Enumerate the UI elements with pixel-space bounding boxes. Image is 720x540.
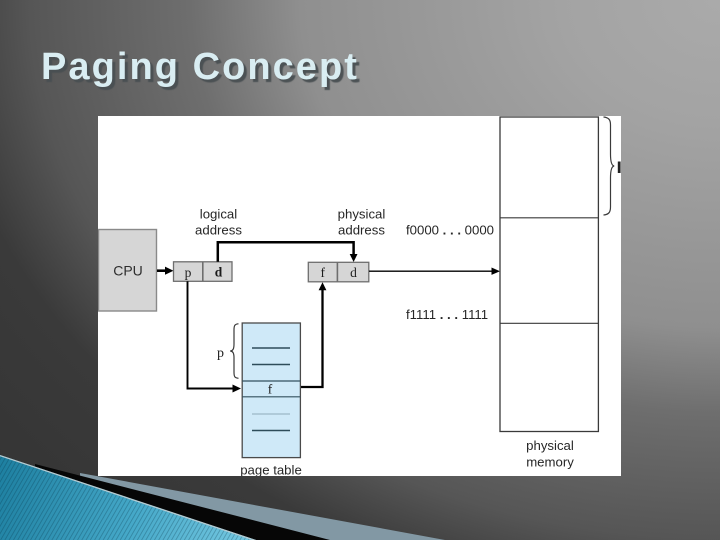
svg-text:p: p — [185, 265, 192, 280]
svg-text:address: address — [195, 223, 242, 238]
svg-text:f1111 . . . 1111: f1111 . . . 1111 — [406, 307, 488, 322]
svg-text:p: p — [217, 346, 224, 361]
svg-text:d: d — [215, 265, 223, 280]
svg-text:logical: logical — [200, 207, 237, 222]
svg-text:CPU: CPU — [113, 263, 143, 279]
svg-text:page table: page table — [240, 463, 302, 477]
svg-text:d: d — [350, 265, 357, 280]
svg-text:f: f — [268, 382, 273, 397]
svg-text:memory: memory — [526, 455, 574, 470]
svg-text:f: f — [320, 265, 325, 280]
svg-text:f0000 . . . 0000: f0000 . . . 0000 — [406, 223, 494, 238]
svg-text:physical: physical — [338, 207, 386, 222]
svg-text:address: address — [338, 223, 385, 238]
svg-text:physical: physical — [526, 438, 574, 453]
